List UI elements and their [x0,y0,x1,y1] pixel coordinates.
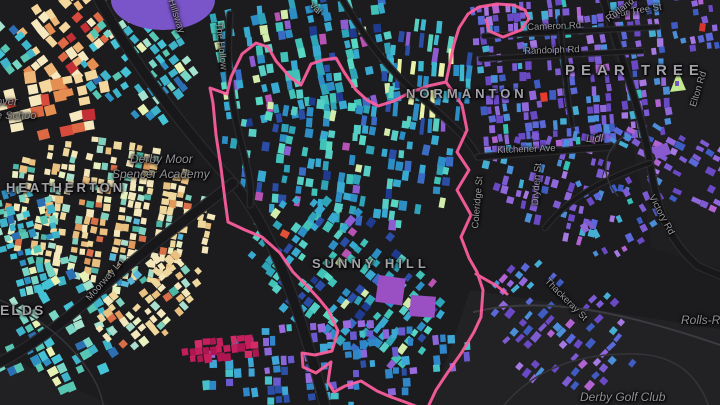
building-cluster-crimson-cluster [181,333,260,366]
building-cluster-normanton-stripes [377,16,477,139]
map-canvas[interactable]: NORMANTONPEAR TREEHEATHERTONSUNNY HILLEL… [0,0,720,405]
buildings-layer [0,0,720,405]
map-render-layer [0,0,720,405]
